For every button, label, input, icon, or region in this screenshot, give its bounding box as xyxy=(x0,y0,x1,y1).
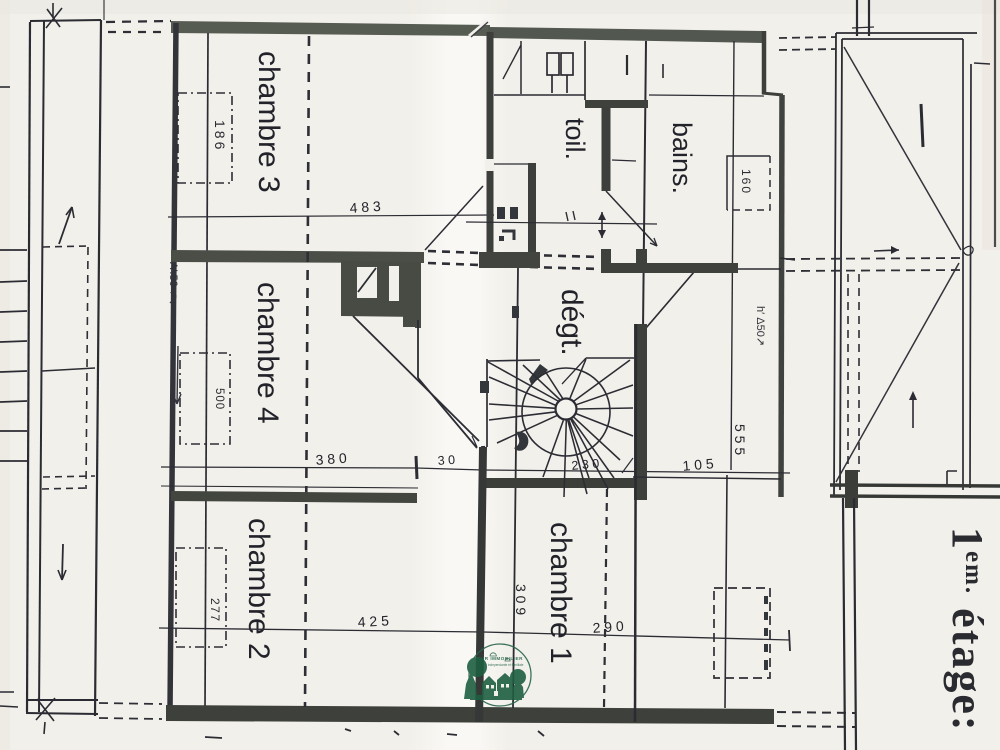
svg-text:bains.: bains. xyxy=(667,122,697,194)
svg-text:4 8 3: 4 8 3 xyxy=(349,198,381,216)
svg-text:toil.: toil. xyxy=(560,118,590,160)
svg-text:chambre 4: chambre 4 xyxy=(251,282,284,424)
svg-text:277: 277 xyxy=(208,598,222,623)
svg-text:4 2 5: 4 2 5 xyxy=(357,612,389,630)
svg-text:dégt.: dégt. xyxy=(555,289,588,356)
svg-text:186: 186 xyxy=(212,120,228,152)
svg-text:chambre 1: chambre 1 xyxy=(544,522,577,664)
svg-text:2 9 0: 2 9 0 xyxy=(592,618,624,636)
svg-text:A′:50·↗↓: A′:50·↗↓ xyxy=(167,262,179,305)
svg-text:chambre 2: chambre 2 xyxy=(242,518,275,660)
svg-text:3 0 9: 3 0 9 xyxy=(513,584,529,615)
svg-text:h′ Δ50↗: h′ Δ50↗ xyxy=(754,306,766,346)
svg-text:5 5 5: 5 5 5 xyxy=(732,424,748,455)
svg-text:chambre 3: chambre 3 xyxy=(252,51,285,193)
svg-text:3 8 0: 3 8 0 xyxy=(315,450,347,468)
svg-text:160: 160 xyxy=(739,169,753,195)
svg-text:1 0 5: 1 0 5 xyxy=(682,455,715,474)
svg-text:2 3 0: 2 3 0 xyxy=(571,456,600,472)
svg-text:500: 500 xyxy=(213,388,225,410)
svg-text:3 0: 3 0 xyxy=(437,453,455,468)
